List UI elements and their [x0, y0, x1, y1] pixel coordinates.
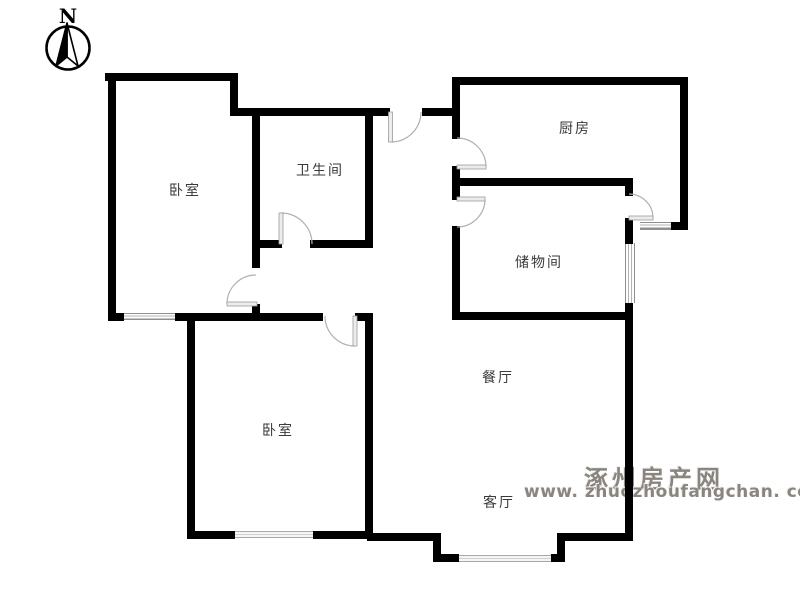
label-bathroom: 卫生间: [296, 160, 344, 180]
label-bedroom-sw: 卧室: [262, 420, 294, 440]
north-label: N: [56, 4, 80, 28]
label-kitchen: 厨房: [559, 118, 591, 138]
door-entry-north: [389, 112, 422, 142]
door-kitchen: [457, 138, 486, 169]
label-living: 客厅: [483, 492, 515, 512]
label-bedroom-nw: 卧室: [169, 180, 201, 200]
door-bathroom: [279, 213, 312, 244]
floor-plan: 涿州房产网 www. zhuozhoufangchan. com N: [0, 0, 800, 600]
door-bedroom-nw: [227, 275, 257, 306]
label-storage: 储物间: [515, 252, 563, 272]
door-swings-layer: [0, 0, 800, 600]
label-dining: 餐厅: [482, 367, 514, 387]
door-entry-east: [629, 194, 653, 220]
door-storage: [457, 197, 485, 227]
door-bedroom-sw: [325, 316, 357, 346]
